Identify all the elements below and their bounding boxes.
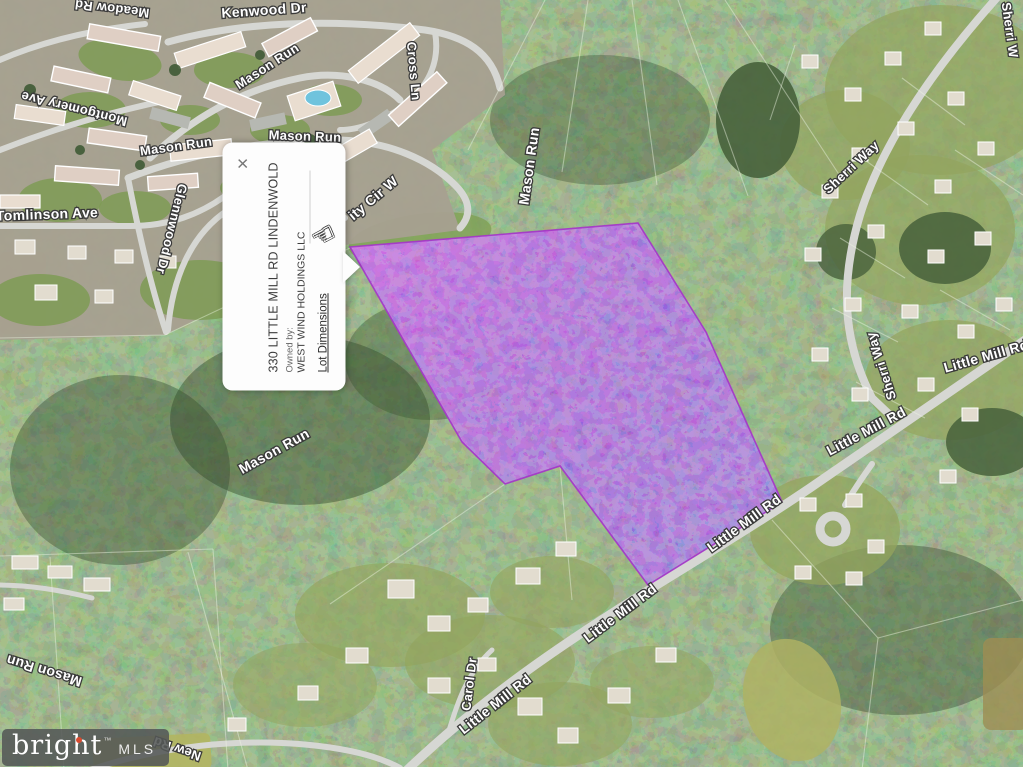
satellite-map[interactable]: Meadow RdKenwood DrMason RunMontgomery A… [0,0,1023,767]
property-popup: × 330 LITTLE MILL RD LINDENWOLD Owned by… [222,142,345,390]
map-viewport: Meadow RdKenwood DrMason RunMontgomery A… [0,0,1023,767]
popup-card: × 330 LITTLE MILL RD LINDENWOLD Owned by… [222,142,345,390]
popup-title: 330 LITTLE MILL RD LINDENWOLD [266,162,280,372]
owner-name: WEST WIND HOLDINGS LLC [295,231,307,372]
close-icon: × [232,157,254,169]
logo-trademark: ™ [103,736,111,745]
close-button[interactable]: × [232,152,254,174]
logo-dot-icon [76,737,82,743]
brightmls-logo: bright™MLS [2,729,169,766]
lot-dimensions-link[interactable]: Lot Dimensions [317,293,329,372]
logo-brand-text: bright [12,730,102,761]
logo-suffix-text: MLS [118,741,156,757]
owned-by-label: Owned by: [284,327,295,372]
popup-pointer [343,251,360,283]
